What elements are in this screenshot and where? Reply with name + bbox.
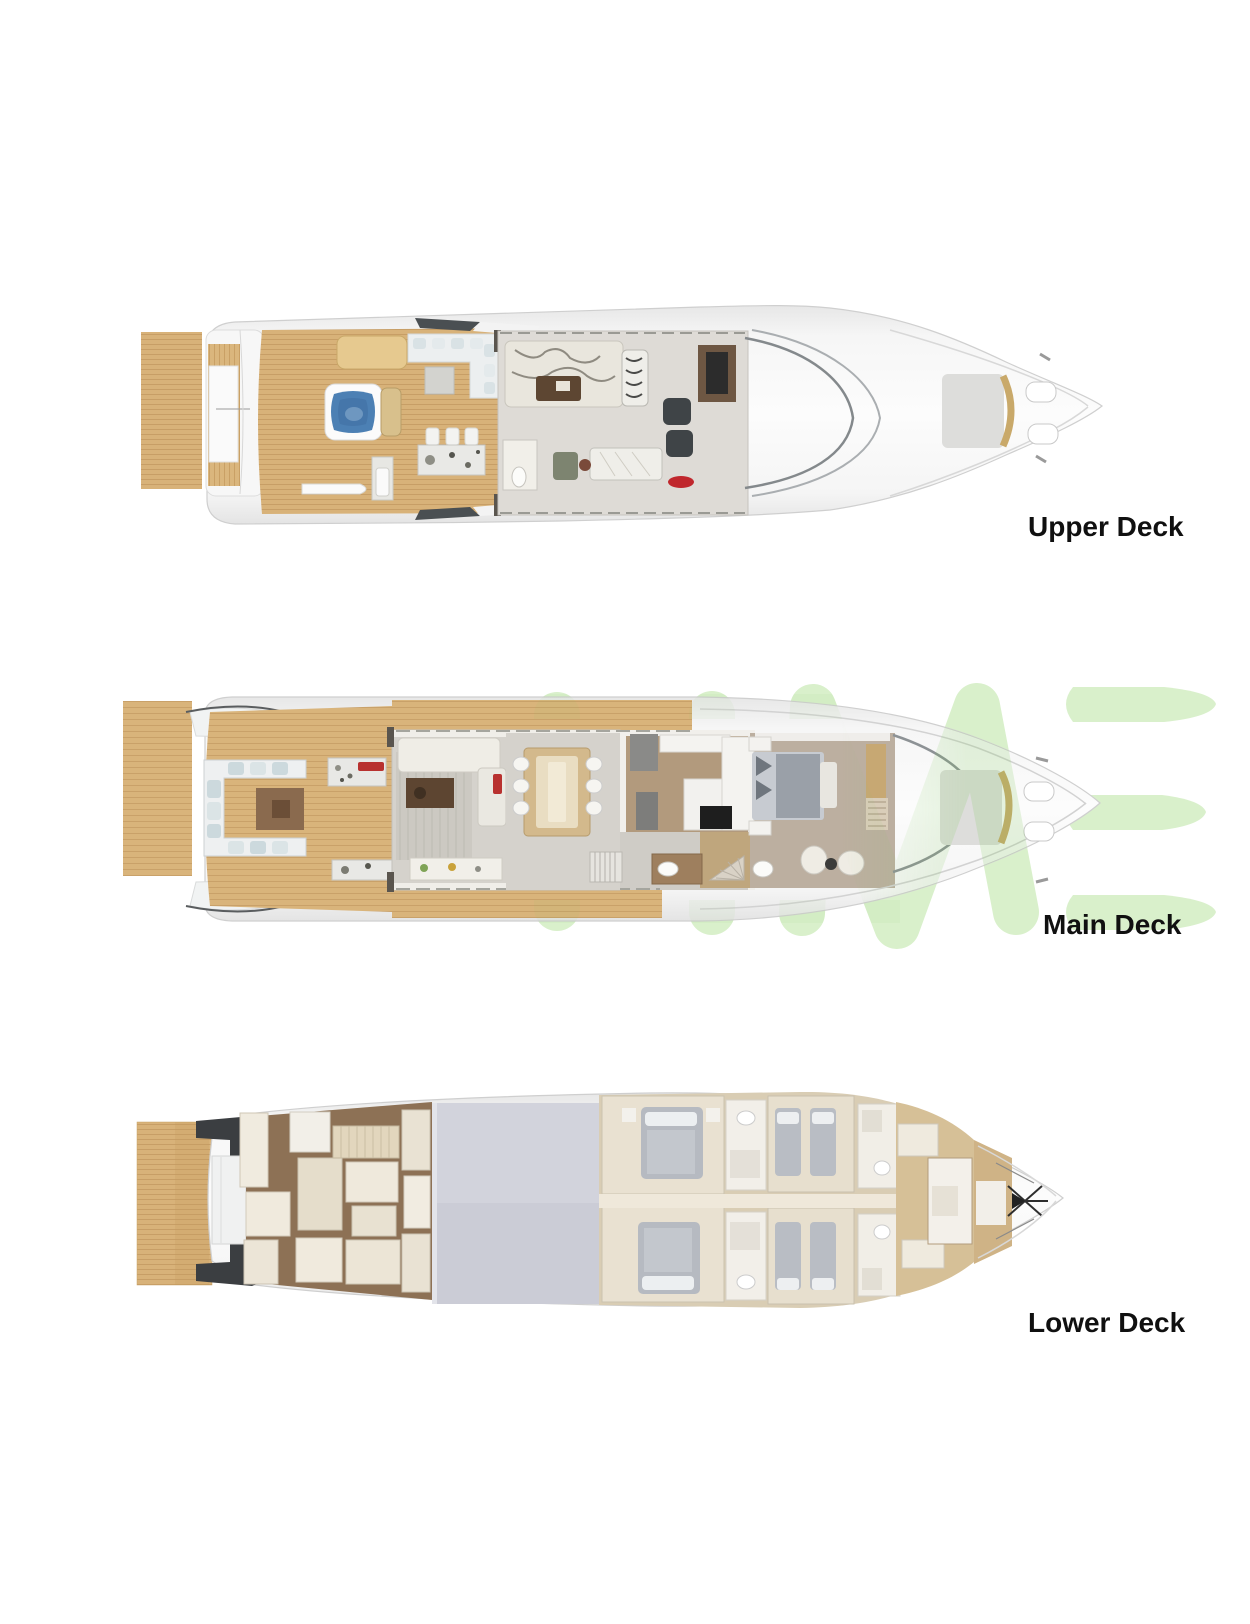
svg-text:Upper Deck: Upper Deck: [1028, 511, 1184, 542]
svg-text:Lower Deck: Lower Deck: [1028, 1307, 1186, 1338]
svg-text:Main Deck: Main Deck: [1043, 909, 1182, 940]
